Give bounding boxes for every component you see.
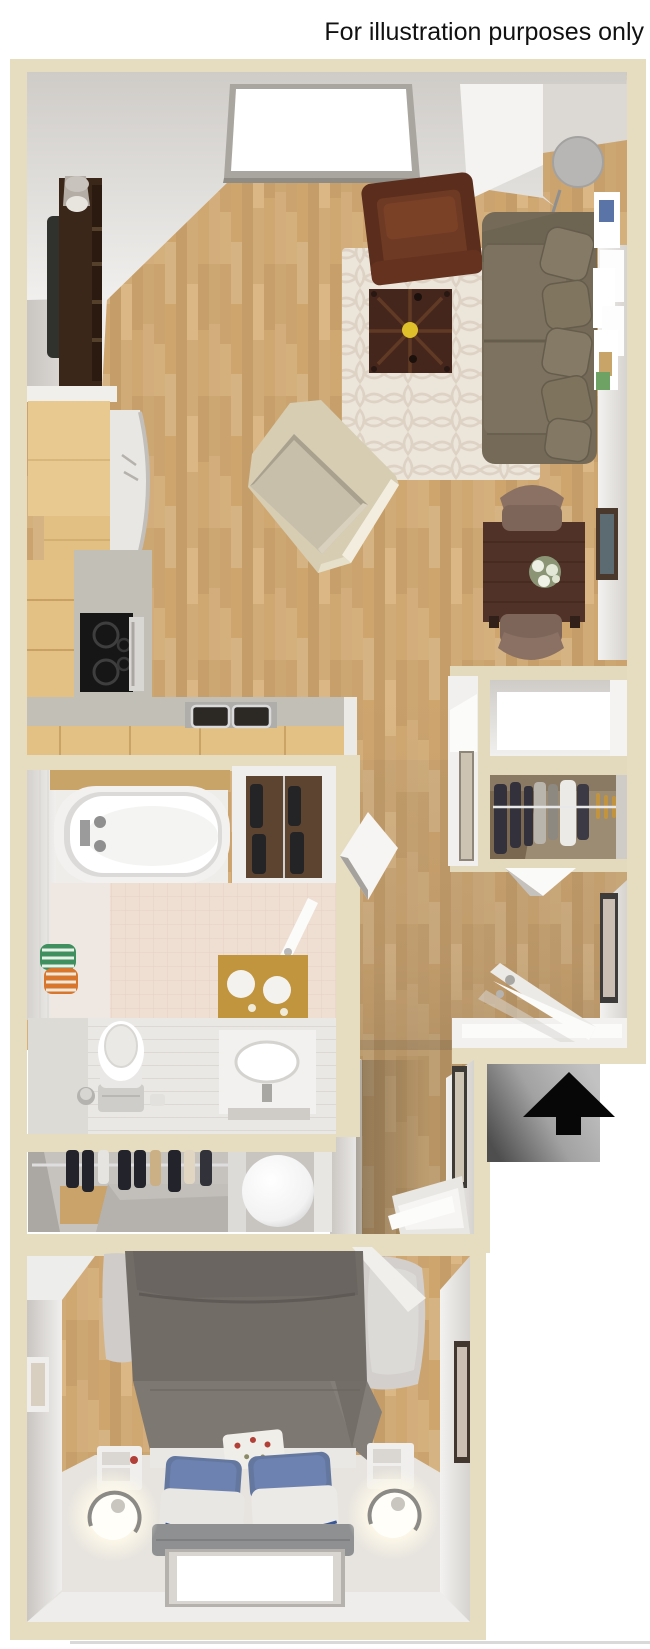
svg-text:For illustration purposes only: For illustration purposes only: [324, 18, 644, 46]
